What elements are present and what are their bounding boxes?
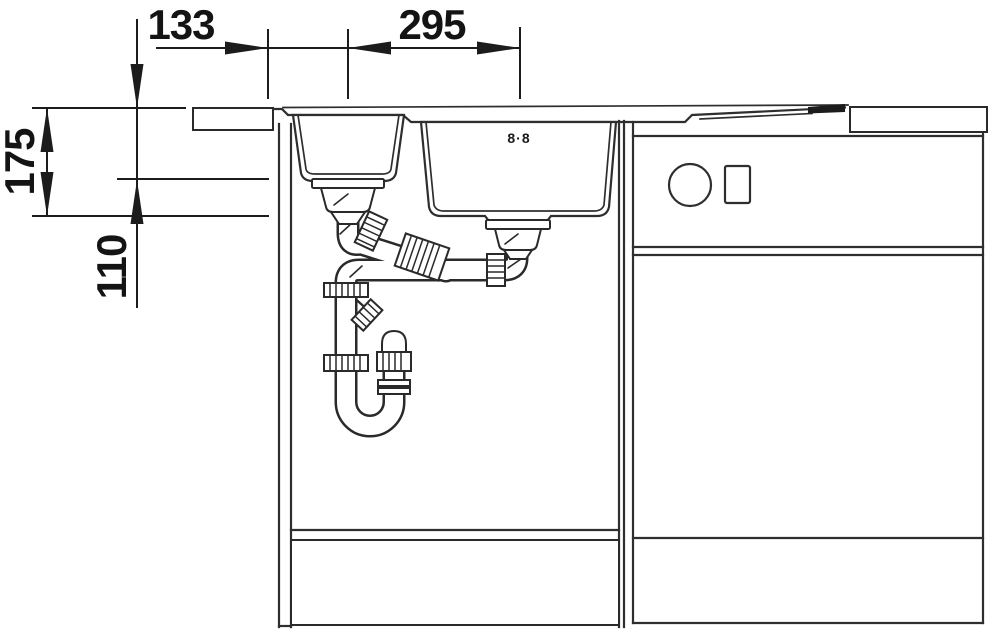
dimension-label-133: 133 (147, 1, 214, 48)
countertop-left-section (193, 108, 273, 130)
appliance-control-panel-rect (725, 166, 750, 203)
sink-brand-mark: 8·8 (507, 130, 530, 146)
dimension-label-175: 175 (0, 128, 43, 196)
appliance-drawer-division (633, 247, 983, 255)
appliance-cabinet (633, 122, 983, 623)
appliance-knob-circle (669, 164, 711, 206)
technical-drawing-canvas: 133 295 175 110 8·8 (0, 0, 993, 632)
cabinet-plinth-drawer (291, 540, 619, 625)
dimension-label-295: 295 (398, 1, 466, 48)
small-bowl (293, 115, 404, 181)
countertop-right-section (850, 107, 987, 132)
sink-back-edge (283, 105, 848, 108)
sink-installation-drawing: 133 295 175 110 8·8 (0, 0, 993, 632)
outlet-dome-cap (377, 331, 411, 394)
dimension-label-110: 110 (88, 235, 135, 300)
